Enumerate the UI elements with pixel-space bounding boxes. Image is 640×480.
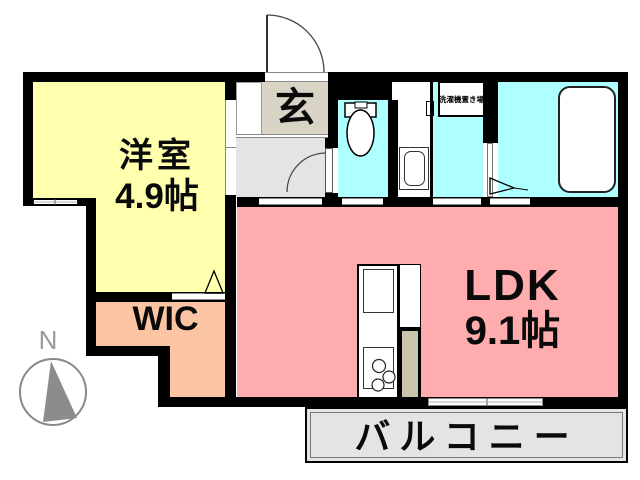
wall-toilet-right [388,100,398,197]
bathroom-door-gap [487,143,493,197]
wic-label: WIC [103,302,228,336]
compass-north-icon [20,359,86,425]
vanity-sink-bowl [404,151,425,186]
balcony-label: バルコニー [315,419,618,455]
kitchen-stove [363,347,394,389]
entrance-door-threshold [265,72,328,82]
refrigerator-space [399,264,421,328]
shoe-cabinet [236,82,262,136]
entrance-step-line [236,134,328,138]
wall-west-step-vertical [86,198,96,356]
wall-left [23,72,33,206]
toilet-threshold [342,198,383,205]
toilet-door-leaf [325,148,333,193]
kitchen-sink [363,269,394,313]
wall-vanity-washroom-divider [430,82,433,197]
floor-plan: 洗濯機置き場 [0,0,640,480]
wic-sliding-door [172,293,225,300]
bathroom-threshold [490,198,530,205]
bathtub-icon [558,86,616,193]
wall-washroom-bath-divider [483,72,498,143]
wall-toilet-top-block [328,72,392,100]
western-room-size: 4.9帖 [67,179,247,214]
laundry-space-label: 洗濯機置き場 [439,94,484,105]
washroom-sliding-door [433,198,481,205]
entrance-label: 玄 [262,88,328,128]
wall-bottom [158,397,628,407]
ldk-size: 9.1帖 [430,311,595,351]
hall-ldk-sliding-door [259,198,322,205]
pipe-space-pillar [399,328,421,401]
compass-north-label: N [28,327,68,353]
toilet-room-area [338,100,388,197]
balcony-sliding-window [428,398,543,406]
wall-right [618,72,628,407]
entrance-door-swing-icon [267,15,324,72]
hallway-area [236,138,325,197]
ldk-name: LDK [430,264,595,308]
western-room-name: 洋室 [67,139,247,173]
laundry-space-box: 洗濯機置き場 [438,81,485,117]
wall-toilet-left-upper [328,100,338,136]
wic-area-lower [170,346,227,397]
